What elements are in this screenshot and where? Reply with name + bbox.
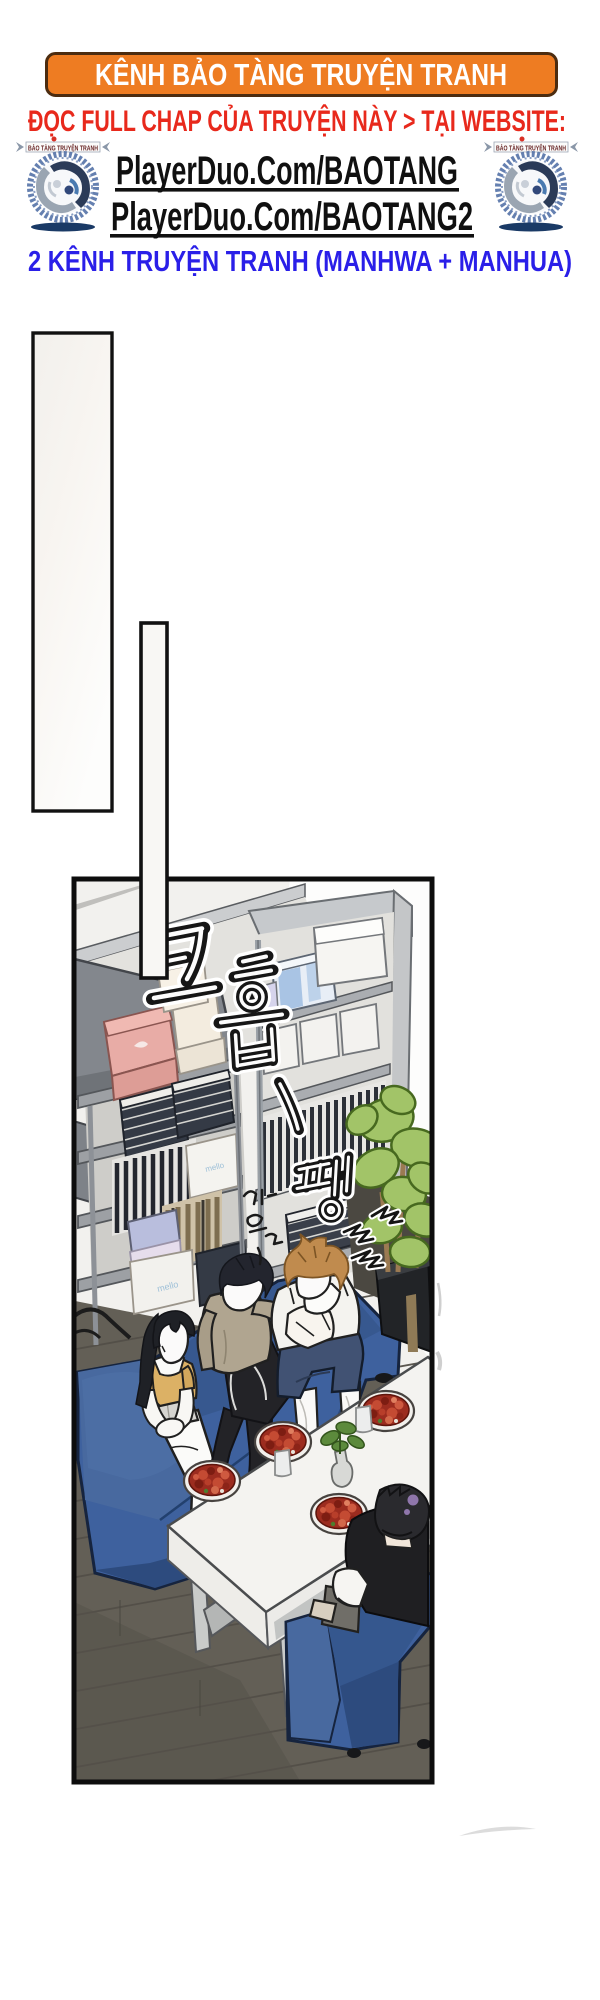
svg-text:PlayerDuo.Com/BAOTANG2: PlayerDuo.Com/BAOTANG2: [111, 195, 473, 239]
svg-text:PlayerDuo.Com/BAOTANG: PlayerDuo.Com/BAOTANG: [116, 149, 458, 193]
svg-text:2 KÊNH TRUYỆN TRANH (MANHWA +: 2 KÊNH TRUYỆN TRANH (MANHWA + MANHUA): [28, 244, 572, 278]
svg-text:KÊNH BẢO TÀNG TRUYỆN TRANH: KÊNH BẢO TÀNG TRUYỆN TRANH: [95, 56, 507, 92]
svg-text:ĐỌC FULL CHAP CỦA TRUYỆN NÀY >: ĐỌC FULL CHAP CỦA TRUYỆN NÀY > TẠI WEBSI…: [28, 104, 566, 138]
svg-text:BẢO TÀNG TRUYỆN TRANH: BẢO TÀNG TRUYỆN TRANH: [28, 144, 98, 153]
